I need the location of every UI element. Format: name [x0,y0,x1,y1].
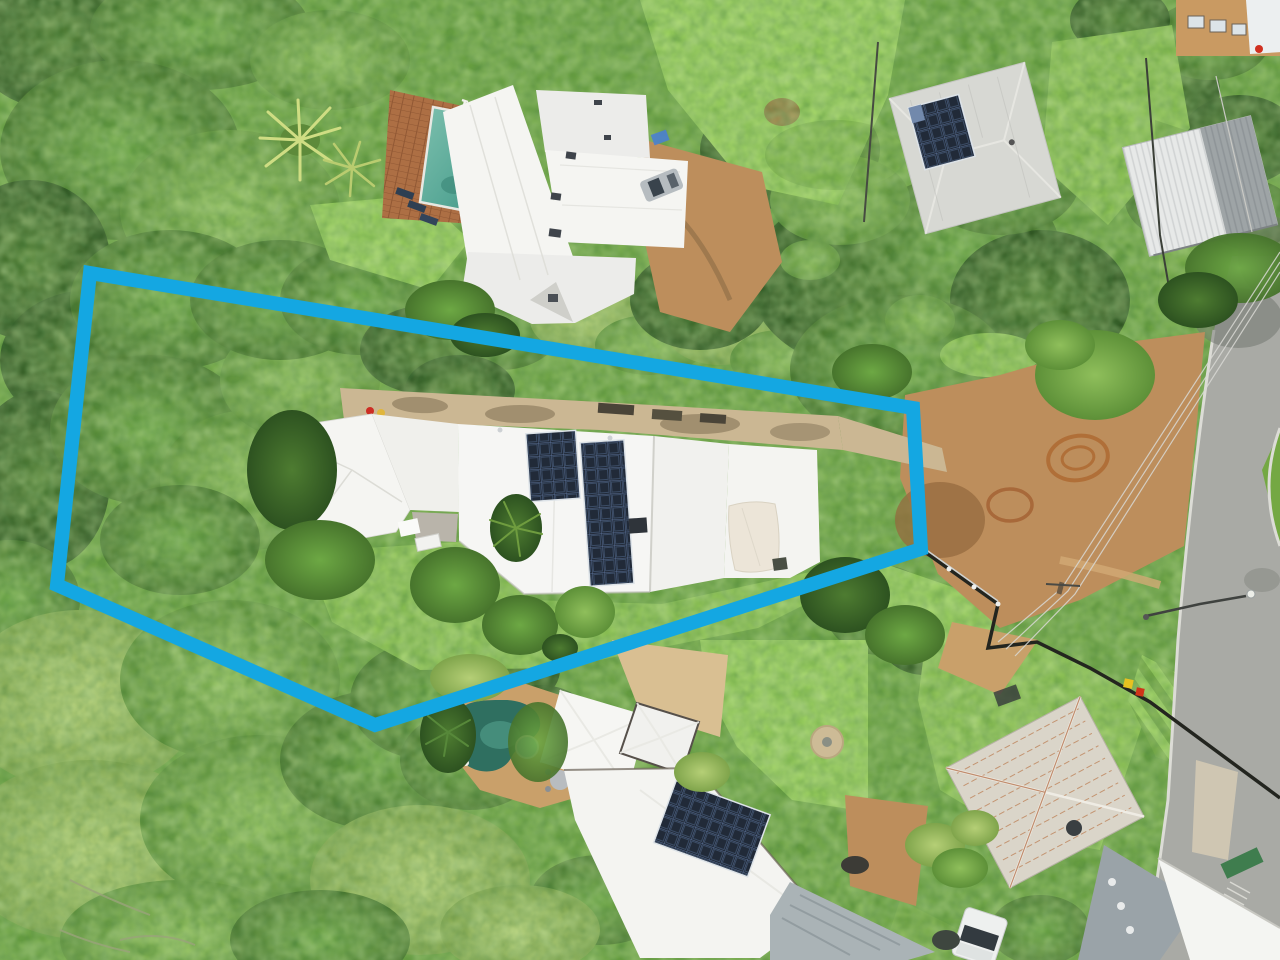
red-marker [1135,687,1144,696]
red-object [1255,45,1263,53]
dark-vehicle [932,930,960,950]
subject-solar-array-a [526,430,581,501]
aerial-photograph [0,0,1280,960]
street-light-lamp [1247,590,1255,598]
junk-pile [841,856,869,874]
ac-unit [629,517,648,533]
red-wheelie-bin [366,407,374,415]
yellow-marker [1123,678,1134,689]
aerial-photo-canvas [0,0,1280,960]
street-corner-building [1176,0,1280,56]
satellite-dish [1066,820,1082,836]
shade-sail [729,502,779,572]
subject-solar-array-b [580,440,634,587]
